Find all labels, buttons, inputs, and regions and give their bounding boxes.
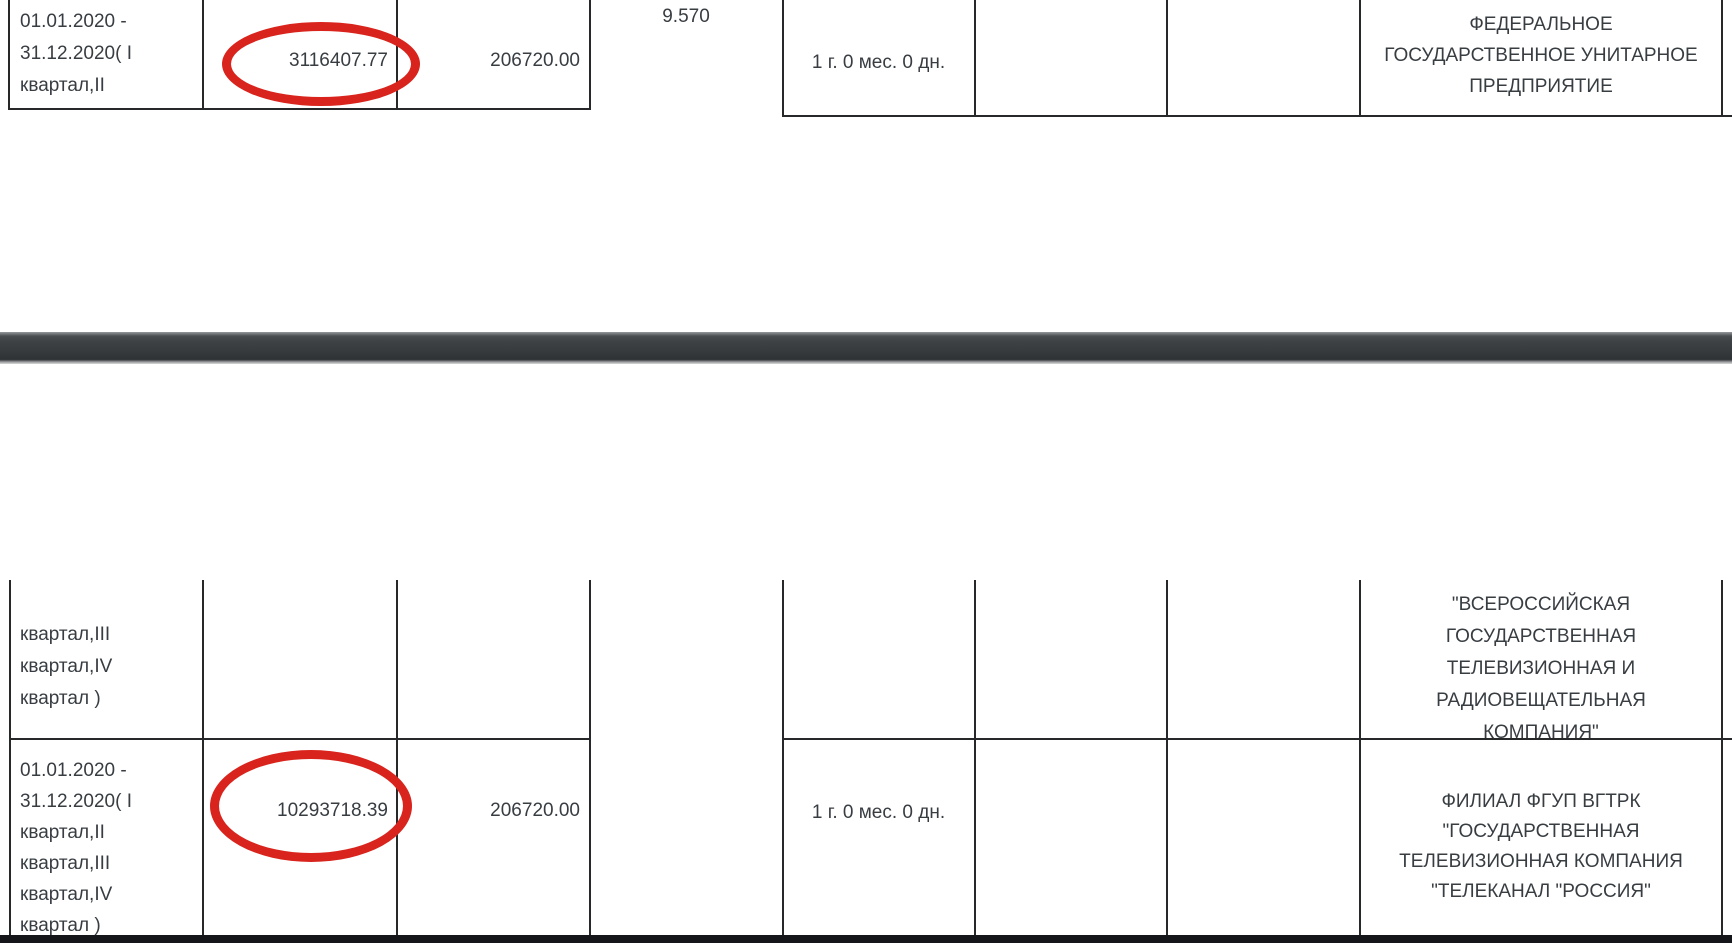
grid-line <box>8 108 591 110</box>
contract-price-value: 206720.00 <box>397 795 580 826</box>
supplier-name-cell: ФЕДЕРАЛЬНОЕ ГОСУДАРСТВЕННОЕ УНИТАРНОЕ ПР… <box>1361 9 1721 102</box>
grid-line <box>396 580 398 936</box>
period-line: квартал,IV <box>20 651 112 683</box>
supplier-line: КОМПАНИЯ" <box>1361 717 1721 749</box>
contract-period-cell: 01.01.2020 - 31.12.2020( I квартал,II <box>20 6 132 102</box>
period-line: 01.01.2020 - <box>20 6 132 38</box>
contract-period-cell: 01.01.2020 - 31.12.2020( I квартал,II кв… <box>20 755 132 941</box>
period-line: 01.01.2020 - <box>20 755 132 786</box>
supplier-line: ГОСУДАРСТВЕННАЯ <box>1361 621 1721 653</box>
supplier-name-cell: ФИЛИАЛ ФГУП ВГТРК "ГОСУДАРСТВЕННАЯ ТЕЛЕВ… <box>1361 787 1721 907</box>
grid-line <box>589 580 591 936</box>
supplier-line: ТЕЛЕВИЗИОННАЯ КОМПАНИЯ <box>1361 847 1721 877</box>
period-line: квартал ) <box>20 683 112 715</box>
supplier-line: ФИЛИАЛ ФГУП ВГТРК <box>1361 787 1721 817</box>
grid-line <box>9 580 11 936</box>
grid-line <box>1721 580 1723 936</box>
supplier-line: ФЕДЕРАЛЬНОЕ <box>1361 9 1721 40</box>
red-circle-annotation <box>210 750 412 862</box>
page-edge-bar <box>0 935 1732 943</box>
period-line: 31.12.2020( I <box>20 786 132 817</box>
grid-line <box>1721 0 1723 117</box>
supplier-line: "ВСЕРОССИЙСКАЯ <box>1361 589 1721 621</box>
grid-line <box>202 580 204 936</box>
period-line: квартал,III <box>20 848 132 879</box>
rate-value: 9.570 <box>590 1 782 32</box>
grid-line <box>8 0 10 110</box>
supplier-line: "ТЕЛЕКАНАЛ "РОССИЯ" <box>1361 877 1721 907</box>
supplier-line: РАДИОВЕЩАТЕЛЬНАЯ <box>1361 685 1721 717</box>
period-line: квартал,II <box>20 817 132 848</box>
supplier-line: "ГОСУДАРСТВЕННАЯ <box>1361 817 1721 847</box>
contract-price-value: 206720.00 <box>397 45 580 76</box>
grid-line <box>782 115 1732 117</box>
grid-line <box>974 580 976 936</box>
supplier-line: ПРЕДПРИЯТИЕ <box>1361 71 1721 102</box>
red-circle-annotation <box>222 22 420 106</box>
period-line: 31.12.2020( I <box>20 38 132 70</box>
period-line: квартал,III <box>20 619 112 651</box>
grid-line <box>1166 0 1168 117</box>
document-viewer: 01.01.2020 - 31.12.2020( I квартал,II 31… <box>0 0 1732 943</box>
grid-line <box>9 738 591 740</box>
contract-period-cell: квартал,III квартал,IV квартал ) <box>20 619 112 715</box>
duration-value: 1 г. 0 мес. 0 дн. <box>783 797 974 828</box>
grid-line <box>782 580 784 936</box>
supplier-line: ТЕЛЕВИЗИОННАЯ И <box>1361 653 1721 685</box>
supplier-line: ГОСУДАРСТВЕННОЕ УНИТАРНОЕ <box>1361 40 1721 71</box>
period-line: квартал,IV <box>20 879 132 910</box>
page-separator-bar <box>0 332 1732 364</box>
supplier-name-cell: "ВСЕРОССИЙСКАЯ ГОСУДАРСТВЕННАЯ ТЕЛЕВИЗИО… <box>1361 589 1721 749</box>
grid-line <box>974 0 976 117</box>
period-line: квартал,II <box>20 70 132 102</box>
duration-value: 1 г. 0 мес. 0 дн. <box>783 47 974 78</box>
grid-line <box>1166 580 1168 936</box>
